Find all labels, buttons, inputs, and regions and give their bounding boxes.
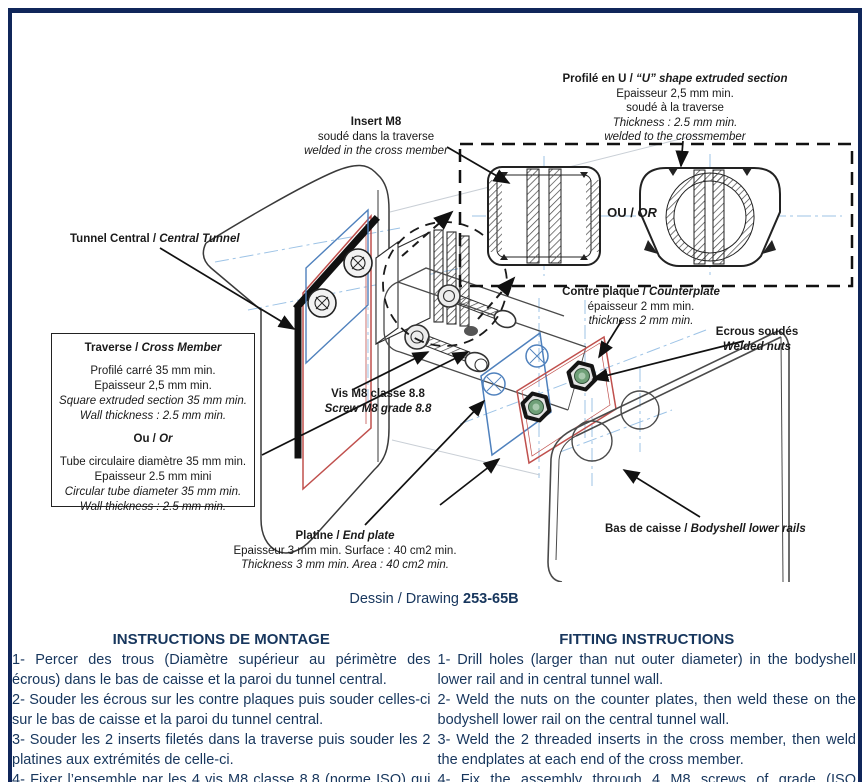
instruction-item-en-3: 3- Weld the 2 threaded inserts in the cr… [438, 730, 857, 770]
instructions-fr-header: INSTRUCTIONS DE MONTAGE [12, 630, 431, 650]
spec-line: Profilé carré 35 mm min. [52, 364, 254, 379]
label-end-plate: Platine / End plate Epaisseur 3 mm min. … [233, 529, 456, 573]
instruction-item-fr-1: 1- Percer des trous (Diamètre supérieur … [12, 650, 431, 690]
instruction-item-en-4: 4- Fix the assembly through 4 M8 screws … [438, 770, 857, 782]
label-u-section: Profilé en U / “U” shape extruded sectio… [563, 72, 788, 145]
label-line: soudé dans la traverse [304, 130, 448, 145]
instructions-english: FITTING INSTRUCTIONS 1- Drill holes (lar… [438, 630, 857, 782]
label-screw-m8: Vis M8 classe 8.8 Screw M8 grade 8.8 [325, 387, 432, 416]
spec-line: Square extruded section 35 mm min. [52, 394, 254, 409]
label-insert-m8: Insert M8 soudé dans la traverse welded … [304, 115, 448, 159]
square-tube-section [488, 167, 600, 265]
label-welded-nuts: Ecrous soudés Welded nuts [716, 325, 798, 354]
label-line: Epaisseur 2,5 mm min. [563, 87, 788, 102]
instruction-item-fr-2: 2- Souder les écrous sur les contre plaq… [12, 690, 431, 730]
label-ou-or: OU / OR [607, 206, 657, 221]
cross-member-spec-box: Traverse / Cross Member Profilé carré 35… [51, 333, 255, 507]
instruction-item-fr-3: 3- Souder les 2 inserts filetés dans la … [12, 730, 431, 770]
spec-line: Epaisseur 2,5 mm min. [52, 379, 254, 394]
document-page: Profilé en U / “U” shape extruded sectio… [0, 0, 868, 782]
m8-screw-a [405, 325, 491, 375]
label-line: welded in the cross member [304, 144, 448, 159]
label-bodyshell-rail: Bas de caisse / Bodyshell lower rails [605, 522, 806, 537]
label-line: Thickness 3 mm min. Area : 40 cm2 min. [233, 558, 456, 573]
spec-line: Circular tube diameter 35 mm min. [52, 485, 254, 500]
spec-line: Tube circulaire diamètre 35 mm min. [52, 455, 254, 470]
round-tube-section [640, 168, 780, 266]
instructions-en-header: FITTING INSTRUCTIONS [438, 630, 857, 650]
spec-line: Epaisseur 2.5 mm mini [52, 470, 254, 485]
label-line: soudé à la traverse [563, 101, 788, 116]
drawing-caption: Dessin / Drawing 253-65B [0, 591, 868, 607]
label-central-tunnel: Tunnel Central / Central Tunnel [70, 232, 240, 247]
label-line: welded to the crossmember [563, 130, 788, 145]
drawing-number: 253-65B [463, 591, 519, 607]
spec-line: Wall thickness : 2.5 mm min. [52, 500, 254, 515]
instructions: INSTRUCTIONS DE MONTAGE 1- Percer des tr… [12, 630, 856, 782]
welded-nut-2 [523, 394, 550, 421]
instruction-item-fr-4: 4- Fixer l’ensemble par les 4 vis M8 cla… [12, 770, 431, 782]
instruction-item-en-2: 2- Weld the nuts on the counter plates, … [438, 690, 857, 730]
label-counterplate: Contre plaque / Counterplate épaisseur 2… [562, 285, 720, 329]
label-line: Epaisseur 3 mm min. Surface : 40 cm2 min… [233, 544, 456, 559]
label-line: Thickness : 2.5 mm min. [563, 116, 788, 131]
instruction-item-en-1: 1- Drill holes (larger than nut outer di… [438, 650, 857, 690]
instructions-french: INSTRUCTIONS DE MONTAGE 1- Percer des tr… [12, 630, 431, 782]
welded-nut-1 [569, 363, 596, 390]
label-line: thickness 2 mm min. [562, 314, 720, 329]
label-line: épaisseur 2 mm min. [562, 300, 720, 315]
spec-line: Wall thickness : 2.5 mm min. [52, 409, 254, 424]
